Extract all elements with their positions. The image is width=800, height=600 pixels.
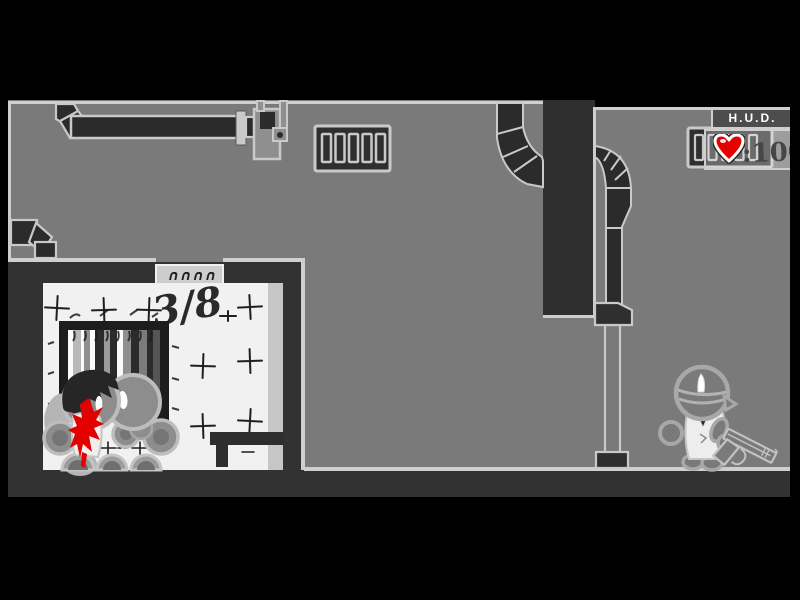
game-stage[interactable]: ∩∩∩∩ 3/8 — [0, 0, 800, 600]
letterbox-top — [0, 0, 800, 100]
hud-title: H.U.D. — [711, 108, 794, 129]
letterbox-bottom — [0, 497, 800, 600]
wall-vent-icon — [315, 126, 390, 171]
hud-health-box: :100 — [704, 129, 800, 170]
letterbox-left — [0, 0, 8, 600]
heart-icon — [713, 134, 745, 164]
letterbox-right — [790, 0, 800, 600]
central-pillar — [543, 100, 596, 318]
